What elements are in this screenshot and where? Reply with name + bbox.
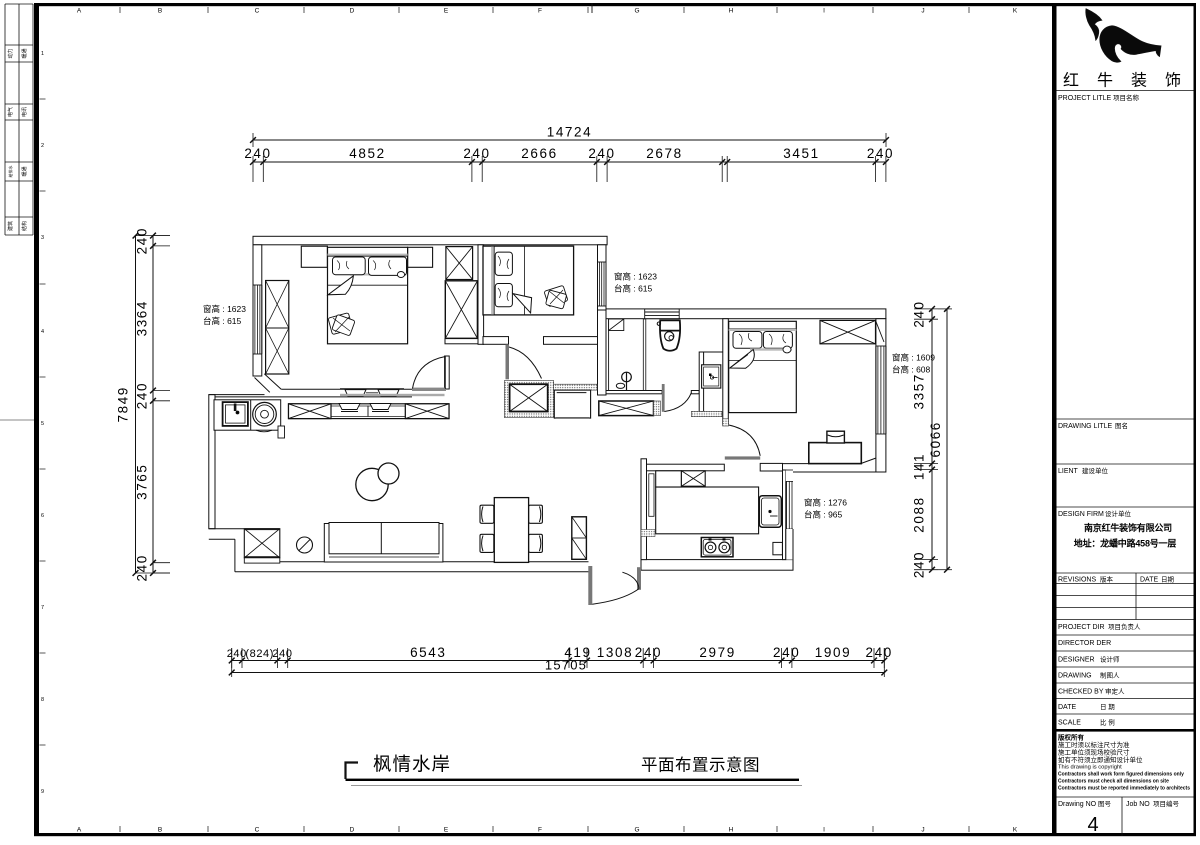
- svg-text:2088: 2088: [912, 496, 927, 532]
- svg-text:DIRECTOR DER: DIRECTOR DER: [1058, 640, 1111, 647]
- svg-text:红: 红: [1063, 72, 1079, 90]
- svg-text:E: E: [444, 8, 449, 15]
- svg-text:台高 : 615: 台高 : 615: [203, 316, 242, 326]
- svg-text:窗高 : 1276: 窗高 : 1276: [804, 498, 847, 508]
- svg-text:240: 240: [244, 146, 271, 161]
- svg-text:240: 240: [135, 554, 150, 581]
- svg-text:E: E: [444, 827, 449, 834]
- svg-text:如有不符须立即通知设计单位: 如有不符须立即通知设计单位: [1058, 755, 1143, 764]
- svg-text:设计单位: 设计单位: [1105, 509, 1132, 518]
- svg-text:14724: 14724: [547, 125, 593, 140]
- svg-text:1308: 1308: [597, 645, 633, 660]
- svg-text:1909: 1909: [815, 645, 851, 660]
- svg-text:G: G: [634, 8, 639, 15]
- svg-text:This drawing is copyright: This drawing is copyright: [1058, 765, 1122, 771]
- svg-text:(824): (824): [245, 648, 274, 660]
- svg-text:141: 141: [912, 453, 927, 480]
- svg-text:牛: 牛: [1097, 72, 1113, 90]
- svg-text:H: H: [729, 827, 734, 834]
- svg-text:D: D: [350, 8, 355, 15]
- svg-text:240: 240: [135, 227, 150, 254]
- svg-text:审定人: 审定人: [1105, 687, 1125, 696]
- svg-text:图名: 图名: [1115, 421, 1128, 430]
- svg-text:1: 1: [41, 51, 44, 57]
- svg-text:设计师: 设计师: [1100, 655, 1120, 664]
- svg-text:F: F: [538, 8, 542, 15]
- svg-text:G: G: [634, 827, 639, 834]
- svg-text:240: 240: [635, 645, 662, 660]
- svg-text:240: 240: [912, 551, 927, 578]
- svg-text:动力: 动力: [7, 48, 14, 58]
- svg-text:版权所有: 版权所有: [1057, 733, 1085, 742]
- svg-text:3451: 3451: [783, 146, 819, 161]
- svg-text:4: 4: [1087, 814, 1098, 836]
- svg-text:制图人: 制图人: [1100, 671, 1120, 680]
- svg-text:窗高 : 1609: 窗高 : 1609: [892, 353, 935, 363]
- svg-text:装: 装: [1131, 72, 1147, 90]
- svg-text:窗高 : 1623: 窗高 : 1623: [203, 304, 246, 314]
- svg-text:240: 240: [135, 382, 150, 409]
- svg-text:台高 : 608: 台高 : 608: [892, 365, 931, 375]
- svg-text:D: D: [350, 827, 355, 834]
- svg-text:电气: 电气: [7, 107, 14, 117]
- svg-text:Job NO: Job NO: [1126, 801, 1150, 808]
- svg-text:PROJECT DIR: PROJECT DIR: [1058, 624, 1105, 631]
- svg-text:枫情水岸: 枫情水岸: [373, 754, 451, 775]
- svg-text:台高 : 615: 台高 : 615: [614, 284, 653, 294]
- svg-text:K: K: [1013, 827, 1018, 834]
- svg-text:2: 2: [41, 143, 44, 149]
- svg-text:台高 : 965: 台高 : 965: [804, 510, 843, 520]
- svg-text:8: 8: [41, 697, 44, 703]
- svg-text:3: 3: [41, 235, 44, 241]
- svg-text:建设单位: 建设单位: [1082, 466, 1109, 475]
- svg-text:Drawing NO: Drawing NO: [1058, 801, 1097, 808]
- svg-text:项目负责人: 项目负责人: [1108, 622, 1141, 631]
- svg-text:240: 240: [773, 645, 800, 660]
- svg-text:日期: 日期: [1161, 576, 1175, 584]
- svg-text:C: C: [255, 8, 260, 15]
- svg-text:9: 9: [41, 789, 44, 795]
- svg-text:给排水: 给排水: [7, 166, 13, 178]
- svg-text:J: J: [921, 827, 924, 834]
- svg-text:7: 7: [41, 605, 44, 611]
- svg-text:项目名称: 项目名称: [1113, 93, 1140, 102]
- svg-text:I: I: [823, 8, 825, 15]
- svg-text:15705: 15705: [545, 658, 587, 673]
- svg-text:A: A: [77, 8, 82, 15]
- svg-text:施工单位须现场校验尺寸: 施工单位须现场校验尺寸: [1058, 748, 1130, 757]
- svg-text:南京红牛装饰有限公司: 南京红牛装饰有限公司: [1084, 522, 1172, 533]
- svg-text:C: C: [255, 827, 260, 834]
- svg-text:240: 240: [227, 648, 247, 660]
- svg-text:6543: 6543: [410, 645, 446, 660]
- svg-text:3357: 3357: [912, 373, 927, 409]
- svg-text:LIENT: LIENT: [1058, 468, 1079, 475]
- svg-text:电讯: 电讯: [21, 107, 28, 117]
- svg-text:4: 4: [41, 329, 44, 335]
- svg-text:Contractors must check all dim: Contractors must check all dimensions on…: [1058, 779, 1169, 785]
- svg-text:240: 240: [912, 300, 927, 327]
- svg-text:DESIGN FIRM: DESIGN FIRM: [1058, 511, 1104, 518]
- svg-text:2678: 2678: [646, 146, 682, 161]
- svg-text:比 例: 比 例: [1100, 718, 1115, 727]
- svg-text:暖通: 暖通: [21, 48, 28, 58]
- svg-text:4852: 4852: [349, 146, 385, 161]
- svg-text:K: K: [1013, 8, 1018, 15]
- svg-text:2979: 2979: [699, 645, 735, 660]
- svg-text:SCALE: SCALE: [1058, 720, 1081, 727]
- svg-text:项目编号: 项目编号: [1153, 799, 1180, 808]
- svg-text:日 期: 日 期: [1100, 703, 1115, 711]
- svg-text:PROJECT LITLE: PROJECT LITLE: [1058, 95, 1111, 102]
- svg-text:窗高 : 1623: 窗高 : 1623: [614, 272, 657, 282]
- svg-text:6: 6: [41, 513, 44, 519]
- svg-text:Contractors must be reported i: Contractors must be reported immediately…: [1058, 786, 1190, 792]
- svg-text:DRAWING: DRAWING: [1058, 673, 1092, 680]
- svg-text:240: 240: [866, 645, 893, 660]
- svg-text:Contractors shall work form fi: Contractors shall work form figured dime…: [1058, 772, 1184, 778]
- svg-text:B: B: [158, 8, 162, 15]
- svg-text:暖通: 暖通: [21, 166, 28, 176]
- svg-text:240: 240: [272, 648, 292, 660]
- svg-text:施工时须以标注尺寸为准: 施工时须以标注尺寸为准: [1058, 740, 1130, 749]
- svg-text:地址：龙蟠中路458号一层: 地址：龙蟠中路458号一层: [1074, 538, 1177, 549]
- svg-text:F: F: [538, 827, 542, 834]
- svg-text:图号: 图号: [1098, 800, 1112, 808]
- svg-text:2666: 2666: [521, 146, 557, 161]
- svg-text:240: 240: [588, 146, 615, 161]
- svg-text:饰: 饰: [1165, 72, 1181, 90]
- svg-text:DRAWING LITLE: DRAWING LITLE: [1058, 423, 1113, 430]
- svg-text:结构: 结构: [21, 221, 28, 231]
- svg-text:建筑: 建筑: [7, 221, 14, 231]
- svg-text:CHECKED BY: CHECKED BY: [1058, 689, 1104, 696]
- svg-text:DATE: DATE: [1058, 704, 1076, 711]
- svg-text:3765: 3765: [135, 463, 150, 499]
- svg-text:I: I: [823, 827, 825, 834]
- svg-text:REVISIONS: REVISIONS: [1058, 577, 1096, 584]
- svg-text:B: B: [158, 827, 162, 834]
- svg-text:A: A: [77, 827, 82, 834]
- svg-text:平面布置示意图: 平面布置示意图: [641, 756, 760, 775]
- svg-text:240: 240: [463, 146, 490, 161]
- svg-text:DESIGNER: DESIGNER: [1058, 657, 1095, 664]
- svg-text:H: H: [729, 8, 734, 15]
- svg-text:7849: 7849: [116, 386, 131, 422]
- svg-text:J: J: [921, 8, 924, 15]
- svg-text:240: 240: [867, 146, 894, 161]
- svg-text:版本: 版本: [1100, 575, 1114, 584]
- svg-text:6066: 6066: [928, 421, 943, 457]
- svg-text:3364: 3364: [135, 300, 150, 336]
- svg-text:DATE: DATE: [1140, 577, 1158, 584]
- svg-text:5: 5: [41, 421, 44, 427]
